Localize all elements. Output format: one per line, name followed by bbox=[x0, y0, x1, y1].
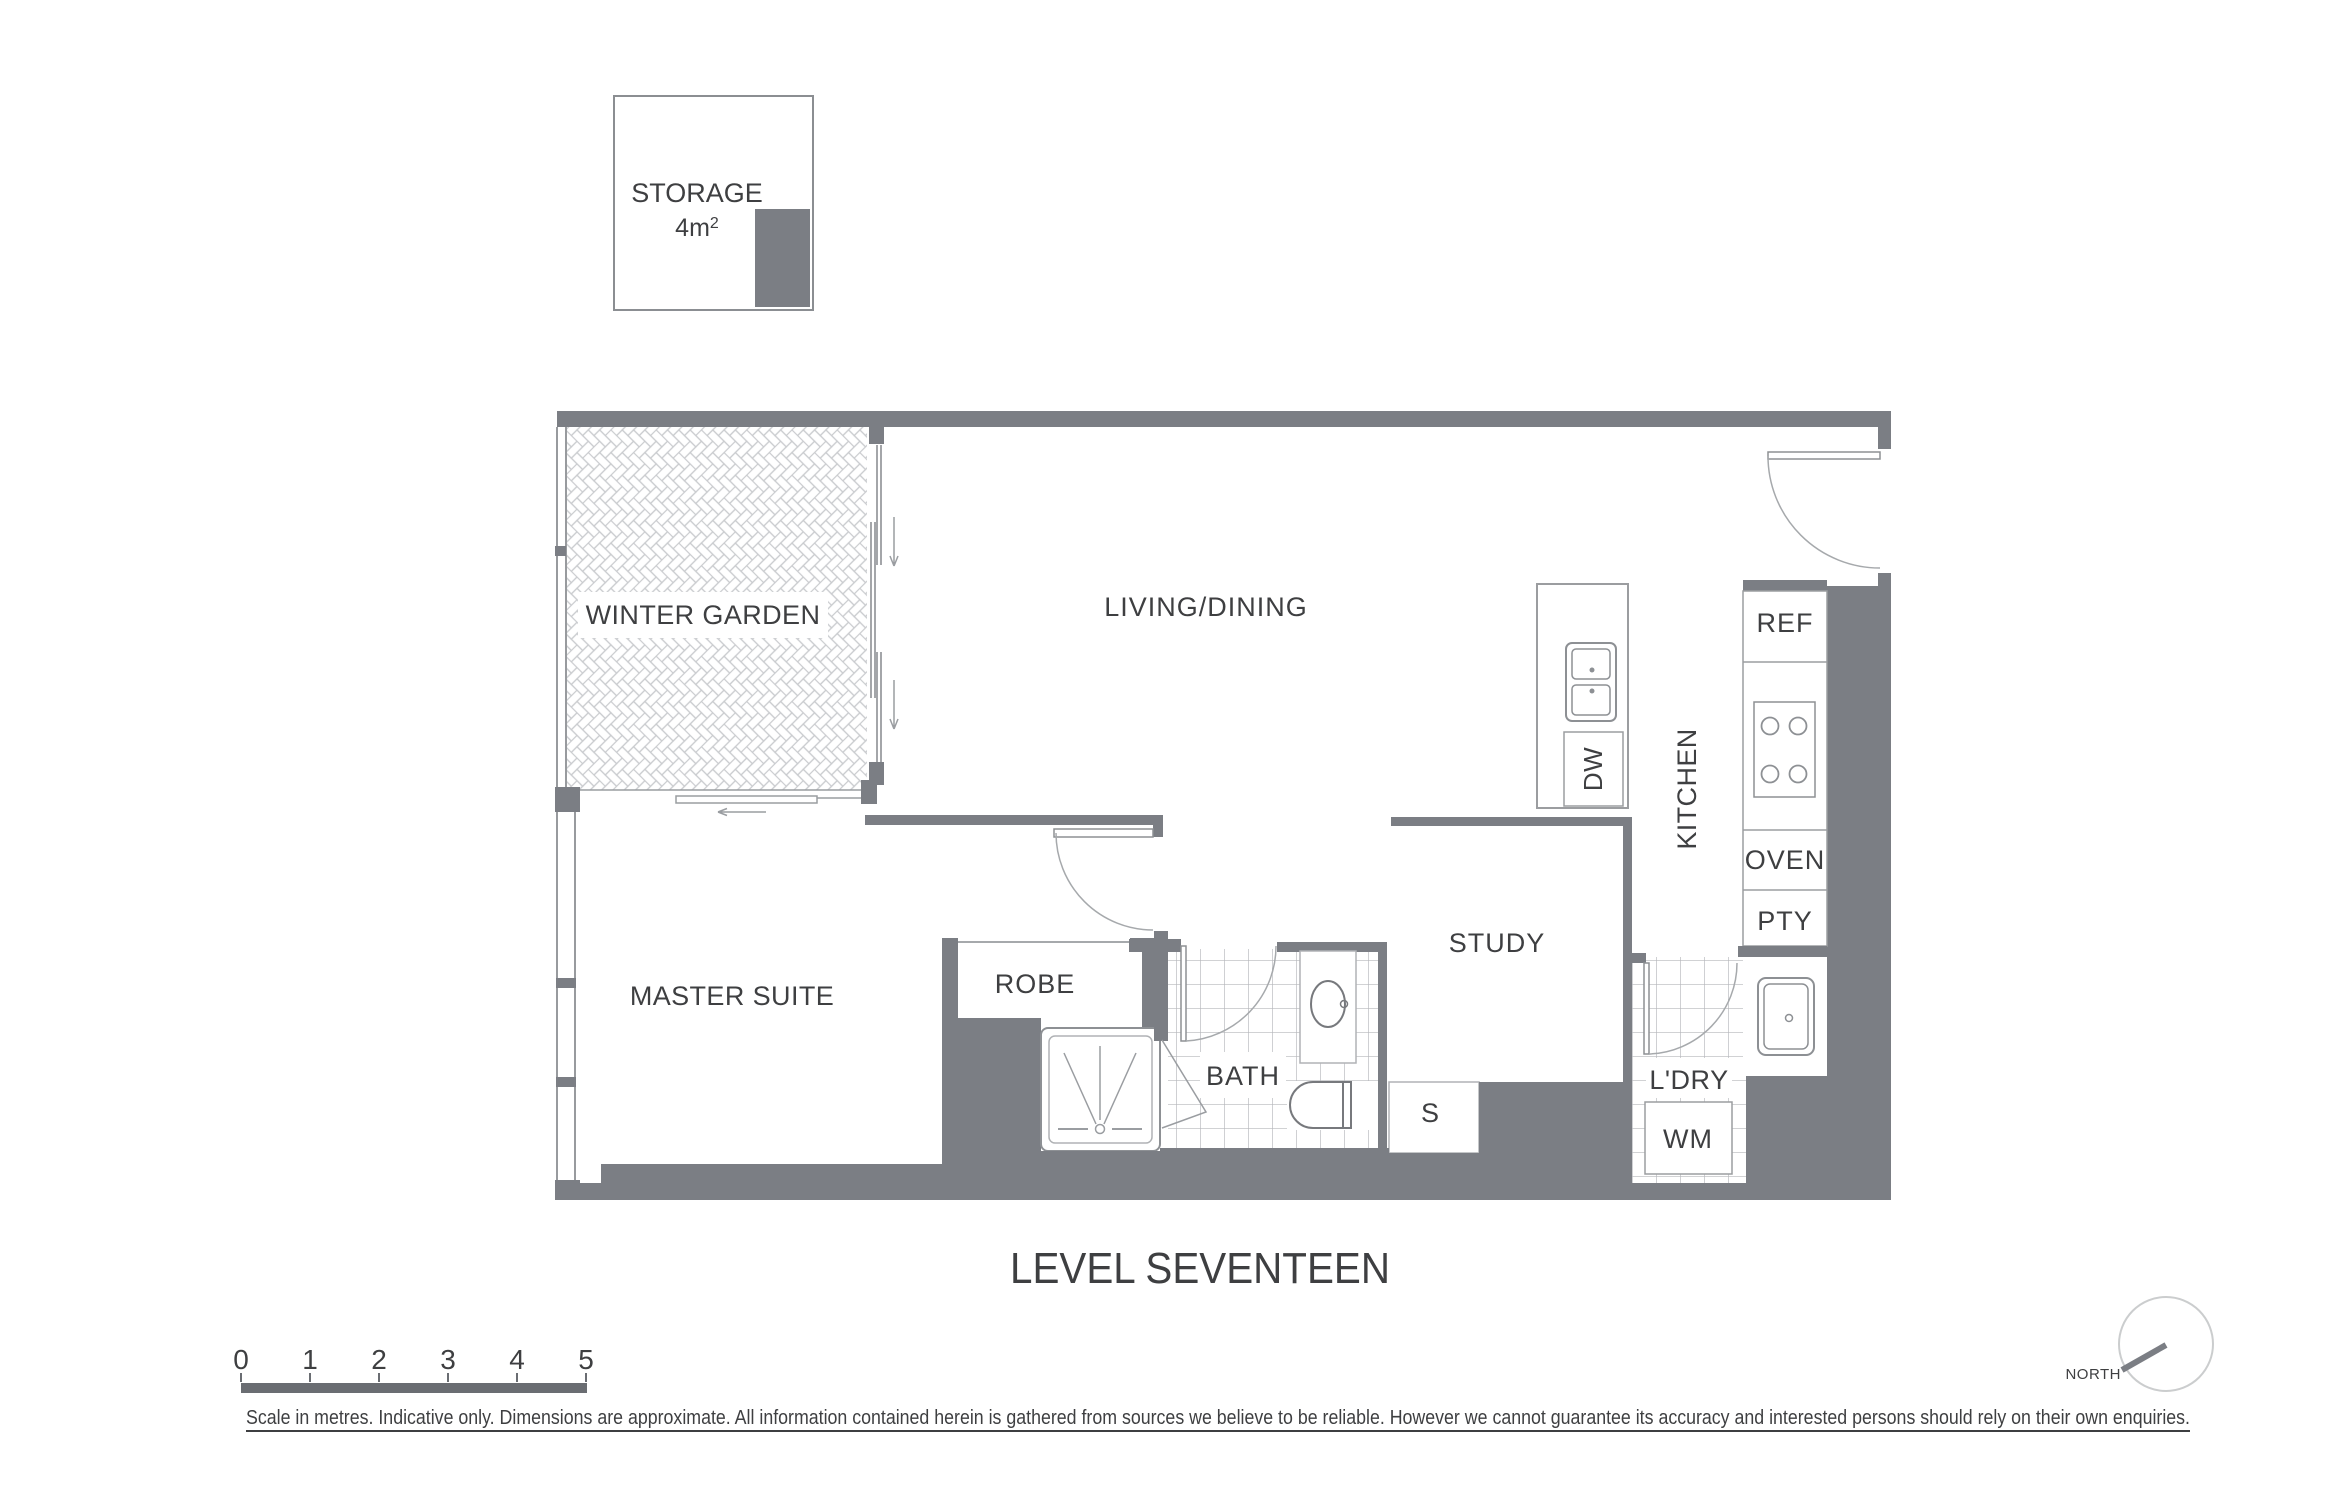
svg-text:Scale in metres. Indicative on: Scale in metres. Indicative only. Dimens… bbox=[246, 1407, 2190, 1429]
svg-text:5: 5 bbox=[578, 1344, 594, 1375]
svg-text:LIVING/DINING: LIVING/DINING bbox=[1104, 592, 1308, 622]
svg-text:NORTH: NORTH bbox=[2065, 1366, 2121, 1383]
svg-text:KITCHEN: KITCHEN bbox=[1672, 728, 1702, 849]
svg-text:L'DRY: L'DRY bbox=[1649, 1065, 1728, 1095]
svg-text:DW: DW bbox=[1578, 747, 1608, 791]
svg-text:REF: REF bbox=[1757, 608, 1814, 638]
svg-text:1: 1 bbox=[302, 1344, 318, 1375]
svg-text:STUDY: STUDY bbox=[1449, 928, 1546, 958]
svg-text:WM: WM bbox=[1663, 1124, 1713, 1154]
svg-text:3: 3 bbox=[440, 1344, 456, 1375]
svg-text:0: 0 bbox=[233, 1344, 249, 1375]
svg-text:WINTER GARDEN: WINTER GARDEN bbox=[586, 600, 821, 630]
svg-text:S: S bbox=[1421, 1098, 1439, 1128]
svg-text:STORAGE: STORAGE bbox=[631, 178, 763, 208]
svg-text:4: 4 bbox=[509, 1344, 525, 1375]
svg-text:OVEN: OVEN bbox=[1745, 845, 1826, 875]
svg-text:2: 2 bbox=[371, 1344, 387, 1375]
svg-text:ROBE: ROBE bbox=[995, 969, 1076, 999]
svg-text:MASTER SUITE: MASTER SUITE bbox=[630, 981, 834, 1011]
svg-text:LEVEL SEVENTEEN: LEVEL SEVENTEEN bbox=[1010, 1244, 1390, 1293]
svg-text:PTY: PTY bbox=[1757, 906, 1813, 936]
svg-text:BATH: BATH bbox=[1206, 1061, 1280, 1091]
